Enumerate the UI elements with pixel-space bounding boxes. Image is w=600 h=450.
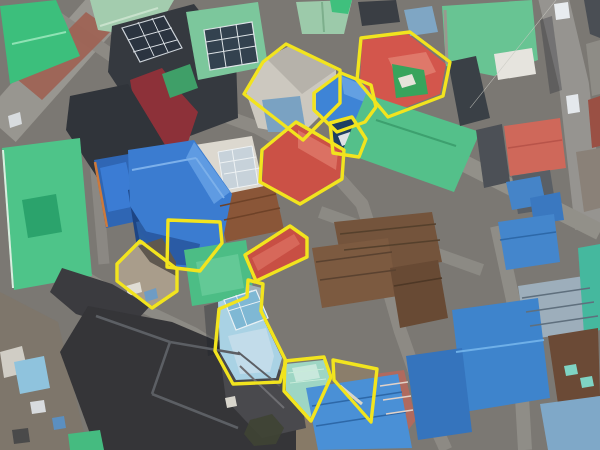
solar-array-b [204, 22, 258, 70]
brown-roof-c [390, 260, 448, 328]
green-flat-tr-edge [445, 10, 447, 64]
skylight-teal-a [564, 364, 578, 376]
aerial-orthophoto [0, 0, 600, 450]
clutter-blue-bottomleft [52, 416, 66, 430]
car-white-1 [554, 2, 570, 20]
green-big-left-inner [22, 194, 62, 238]
clutter-white-bottomleft [30, 400, 46, 414]
aerial-photo-canvas [0, 0, 600, 450]
blue-roof-topright-2 [498, 214, 560, 270]
blue-gray-roof-corner [540, 396, 600, 450]
dark-block-top-center [358, 0, 400, 26]
clutter-white-dirt [225, 396, 237, 408]
blue-shed-left [14, 356, 50, 394]
car-white-2 [566, 94, 580, 114]
skylight-teal-b [580, 376, 594, 388]
clutter-dark-bottomleft [12, 428, 30, 444]
